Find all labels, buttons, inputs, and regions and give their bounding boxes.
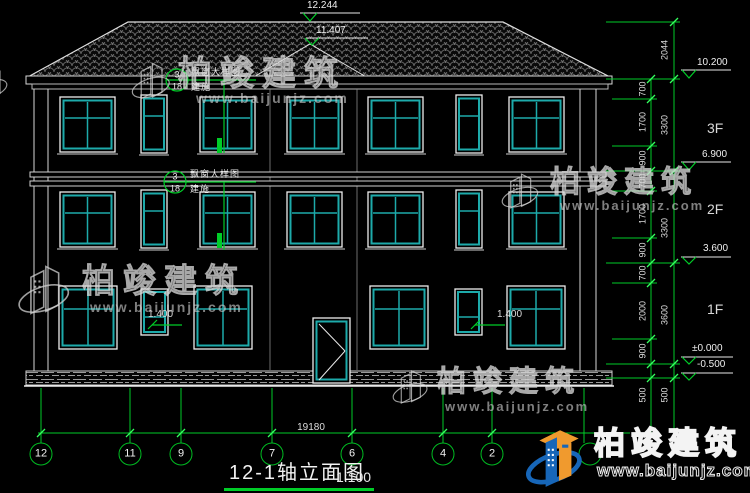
company-logo: 柏竣建筑 www.baijunjz.com xyxy=(524,424,750,492)
watermark-brand: 柏竣建筑 xyxy=(178,57,346,91)
dim-inner: 1700 xyxy=(639,112,648,132)
dim-outer: 2044 xyxy=(661,40,670,60)
dim-outer: 500 xyxy=(661,387,670,402)
logo-brand-text: 柏竣建筑 xyxy=(594,428,742,459)
dim-outer: 3300 xyxy=(661,218,670,238)
axis-number-12: 12 xyxy=(35,449,47,460)
callout-label: 飘窗大样图 xyxy=(190,170,240,179)
dim-inner: 900 xyxy=(639,343,648,358)
axis-number-6: 6 xyxy=(349,449,355,460)
cad-elevation-drawing: 12.244 11.407 10.200 6.900 3.600 ±0.000 … xyxy=(0,0,750,493)
watermark-site: www.baijunjz.com xyxy=(90,300,243,314)
axis-number-9: 9 xyxy=(178,449,184,460)
elevation-base-label: -0.500 xyxy=(697,360,725,370)
axis-number-7: 7 xyxy=(269,449,275,460)
floor-label-1f: 1F xyxy=(707,302,723,316)
dim-outer: 3600 xyxy=(661,305,670,325)
watermark-mid-right: 柏竣建筑 www.baijunjz.com xyxy=(500,166,740,218)
watermark-site: www.baijunjz.com xyxy=(196,91,349,105)
watermark-building-icon xyxy=(130,55,178,107)
axis-number-2: 2 xyxy=(489,449,495,460)
axis-number-4: 4 xyxy=(440,449,446,460)
drawing-scale: 1:100 xyxy=(336,470,371,484)
elevation-ridge-label: 12.244 xyxy=(307,1,338,11)
dim-inner: 500 xyxy=(639,387,648,402)
elevation-floor2-label: 3.600 xyxy=(703,244,728,254)
elevation-gable-label: 11.407 xyxy=(316,26,346,36)
overall-width-dim: 19180 xyxy=(297,423,325,433)
dim-inner: 700 xyxy=(639,81,648,96)
dim-inner: 900 xyxy=(639,242,648,257)
callout-sheet-number: 18 xyxy=(170,185,180,194)
watermark-icon-partial xyxy=(0,58,15,108)
watermark-mid-left: 柏竣建筑 www.baijunjz.com xyxy=(16,258,266,322)
watermark-top: 柏竣建筑 www.baijunjz.com xyxy=(130,55,370,111)
watermark-brand: 柏竣建筑 xyxy=(82,264,246,297)
title-underline xyxy=(224,488,374,491)
dim-inner: 700 xyxy=(639,265,648,280)
watermark-brand: 柏竣建筑 xyxy=(550,168,698,198)
dim-outer: 3300 xyxy=(661,115,670,135)
floor-label-3f: 3F xyxy=(707,121,723,135)
watermark-brand: 柏竣建筑 xyxy=(437,368,581,397)
sill-height-label: 1.400 xyxy=(497,310,522,320)
dim-inner: 2000 xyxy=(639,301,648,321)
callout-detail-number: 3 xyxy=(172,173,177,182)
watermark-site: www.baijunjz.com xyxy=(445,400,589,413)
company-logo-icon xyxy=(524,424,592,490)
watermark-site: www.baijunjz.com xyxy=(560,199,704,212)
watermark-building-icon xyxy=(391,365,435,409)
watermark-building-icon xyxy=(500,166,546,216)
elevation-floor3-label: 6.900 xyxy=(702,150,727,160)
elevation-eave-label: 10.200 xyxy=(697,58,728,68)
axis-number-11: 11 xyxy=(124,449,135,460)
dim-inner: 900 xyxy=(639,150,648,165)
watermark-building-icon xyxy=(16,258,80,322)
callout-ref: 建施 xyxy=(190,185,210,194)
logo-site-text: www.baijunjz.com xyxy=(597,462,750,479)
windows-2f xyxy=(57,190,567,250)
entry-door xyxy=(313,318,350,383)
watermark-bottom: 柏竣建筑 www.baijunjz.com xyxy=(391,365,621,421)
elevation-ground-label: ±0.000 xyxy=(692,344,723,354)
